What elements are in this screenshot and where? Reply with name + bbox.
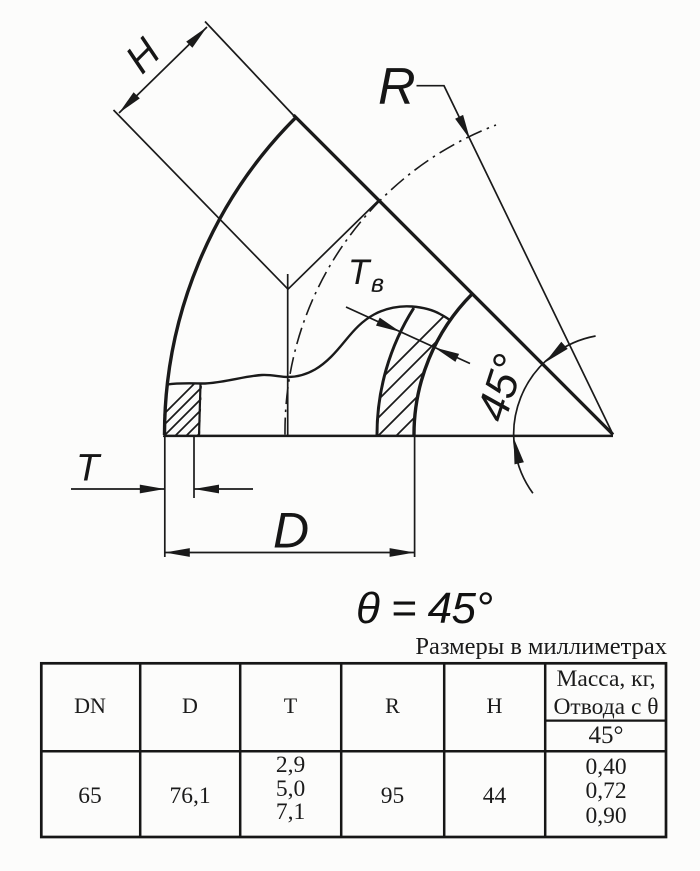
svg-text:Т: Т bbox=[348, 253, 372, 292]
svg-text:R: R bbox=[378, 58, 416, 116]
svg-text:D: D bbox=[273, 503, 309, 559]
svg-text:в: в bbox=[371, 270, 384, 298]
svg-text:T: T bbox=[76, 448, 102, 490]
svg-text:45°: 45° bbox=[467, 349, 534, 427]
svg-text:H: H bbox=[117, 30, 169, 82]
